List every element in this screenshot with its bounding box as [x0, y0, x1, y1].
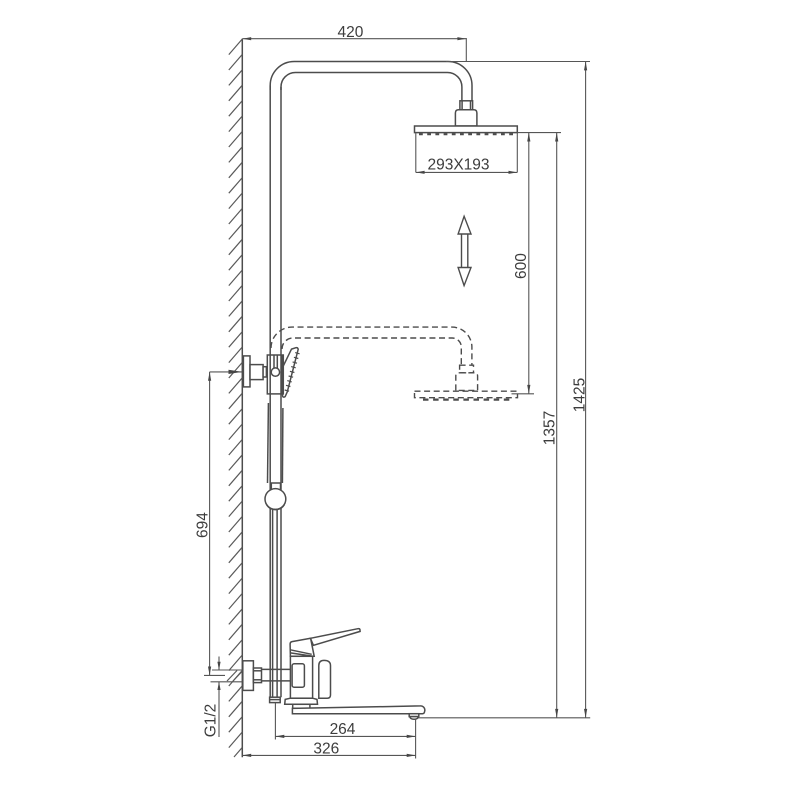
svg-text:293X193: 293X193 — [427, 157, 489, 174]
svg-text:1425: 1425 — [572, 378, 589, 412]
svg-text:326: 326 — [313, 740, 339, 757]
svg-text:420: 420 — [337, 24, 363, 41]
svg-text:600: 600 — [513, 253, 530, 279]
svg-text:G1/2: G1/2 — [203, 704, 220, 738]
svg-text:264: 264 — [330, 721, 356, 738]
svg-text:1357: 1357 — [542, 411, 559, 445]
svg-text:694: 694 — [195, 512, 212, 538]
